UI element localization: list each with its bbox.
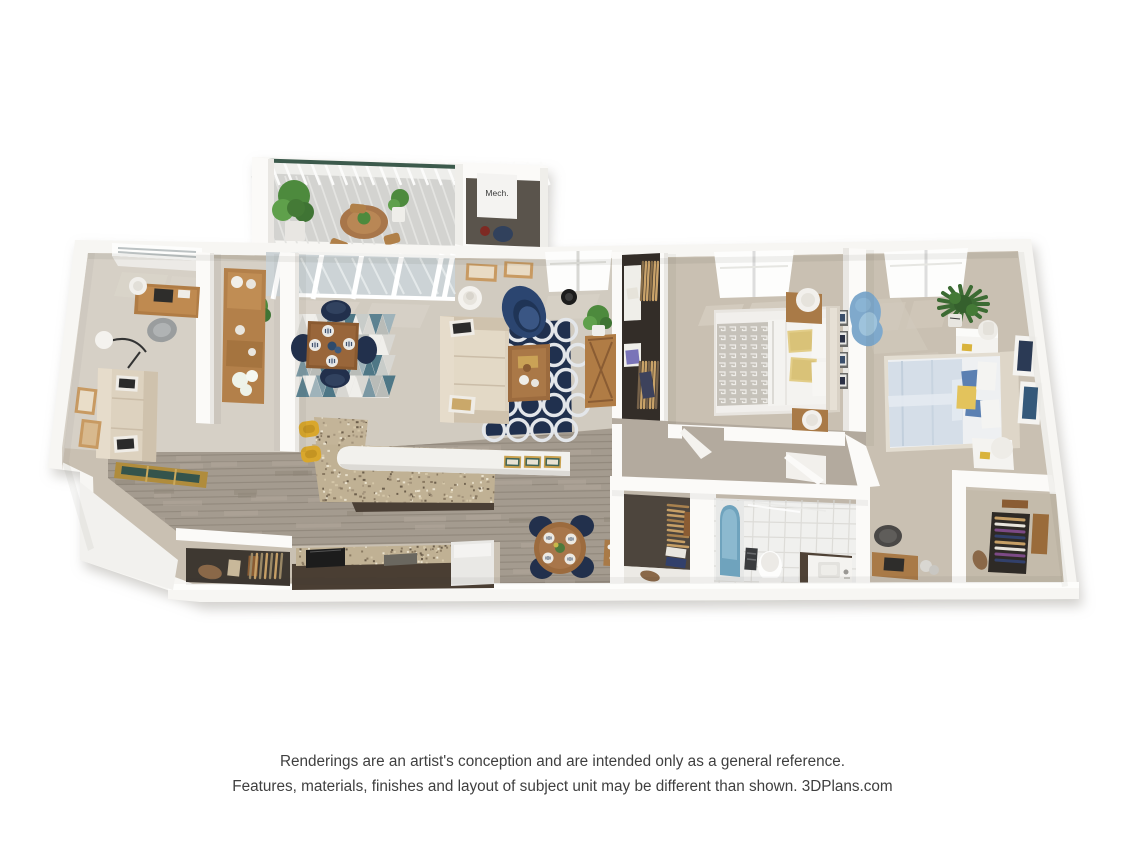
svg-text:Mech.: Mech. <box>485 188 508 198</box>
